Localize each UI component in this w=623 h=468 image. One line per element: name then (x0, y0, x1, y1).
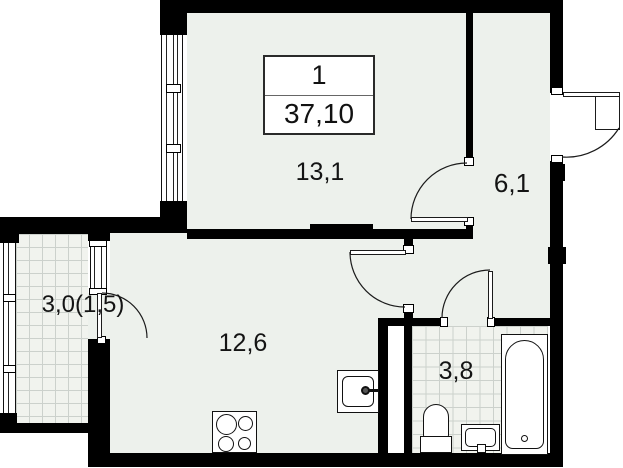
balcony-window (90, 241, 107, 295)
kitchen-area-label: 12,6 (185, 329, 301, 358)
living-room-window-frame-line-b (177, 35, 178, 201)
floor-plan: 1 37,10 13,1 6,1 12,6 3,8 3,0(1,5) (0, 0, 623, 468)
bathroom-door-jamb-left (440, 317, 448, 327)
entry-door-jamb-top (551, 87, 563, 95)
bathroom-west-wall (404, 320, 412, 453)
entry-door-leaf-panel (595, 96, 620, 130)
balcony-kitchen-wall-bottom (88, 339, 110, 453)
toilet-bowl (423, 404, 449, 438)
balcony-railing-post-lower (3, 365, 16, 373)
balcony-window-line-a (94, 241, 95, 295)
wall-pier-hall (548, 247, 566, 264)
living-room-window-glass-line (166, 35, 167, 201)
wall-pier-entry (550, 164, 565, 181)
balcony-railing-line (8, 243, 9, 413)
bathtub-drain (521, 435, 528, 442)
hallway-floor-lower (413, 239, 550, 318)
living-window-mullion-upper (166, 84, 181, 93)
living-hall-partition (466, 13, 473, 161)
hallway-area-label: 6,1 (480, 168, 544, 199)
living-kitchen-wall-thick (310, 224, 373, 239)
living-room-window (161, 35, 183, 201)
living-door-jamb-top (464, 157, 474, 166)
washbasin-pedestal (477, 444, 486, 453)
bathtub-basin (505, 340, 544, 449)
balcony-bottom-wall (0, 423, 88, 433)
balcony-window-line-b (101, 241, 102, 295)
exterior-wall-top (160, 0, 563, 13)
living-room-area-label: 13,1 (260, 158, 380, 187)
kitchen-door-jamb-bottom (403, 304, 414, 313)
exterior-wall-right-lower (550, 161, 563, 467)
bathroom-door-leaf (488, 271, 493, 319)
bathroom-north-wall-right (494, 318, 550, 326)
bathroom-area-label: 3,8 (408, 357, 504, 386)
exterior-wall-right-upper (550, 13, 563, 93)
duct-shaft (388, 326, 404, 453)
toilet-tank (420, 436, 452, 453)
kitchen-door-leaf (350, 250, 406, 255)
kitchen-north-wall (88, 217, 187, 233)
kitchen-east-wall (378, 320, 388, 453)
living-window-mullion-lower (166, 144, 181, 153)
balcony-tiled-floor (16, 234, 88, 423)
balcony-top-corner (0, 217, 19, 243)
total-area: 37,10 (265, 96, 373, 134)
flat-number: 1 (265, 57, 373, 96)
balcony-railing (3, 243, 16, 413)
stove-burner-1 (216, 414, 237, 435)
living-hall-partition-end (466, 225, 473, 239)
kitchen-sink-faucet-stub (369, 389, 379, 392)
stove-burner-2 (238, 416, 253, 431)
living-door-leaf (411, 217, 468, 222)
stove-burner-3 (218, 436, 234, 452)
entry-door-arc (562, 128, 619, 157)
exterior-wall-bottom (88, 453, 563, 467)
balcony-railing-post-upper (3, 294, 16, 302)
entry-door-jamb-bottom (551, 155, 563, 163)
balcony-area-label: 3,0(1,5) (18, 291, 148, 319)
living-room-window-frame-line-a (173, 35, 174, 201)
apartment-title-box: 1 37,10 (263, 55, 375, 135)
left-wall-top-block (160, 0, 187, 35)
stove-burner-4 (238, 437, 251, 450)
hallway-floor-upper (473, 13, 550, 239)
balcony-window-cap-top (89, 240, 107, 247)
